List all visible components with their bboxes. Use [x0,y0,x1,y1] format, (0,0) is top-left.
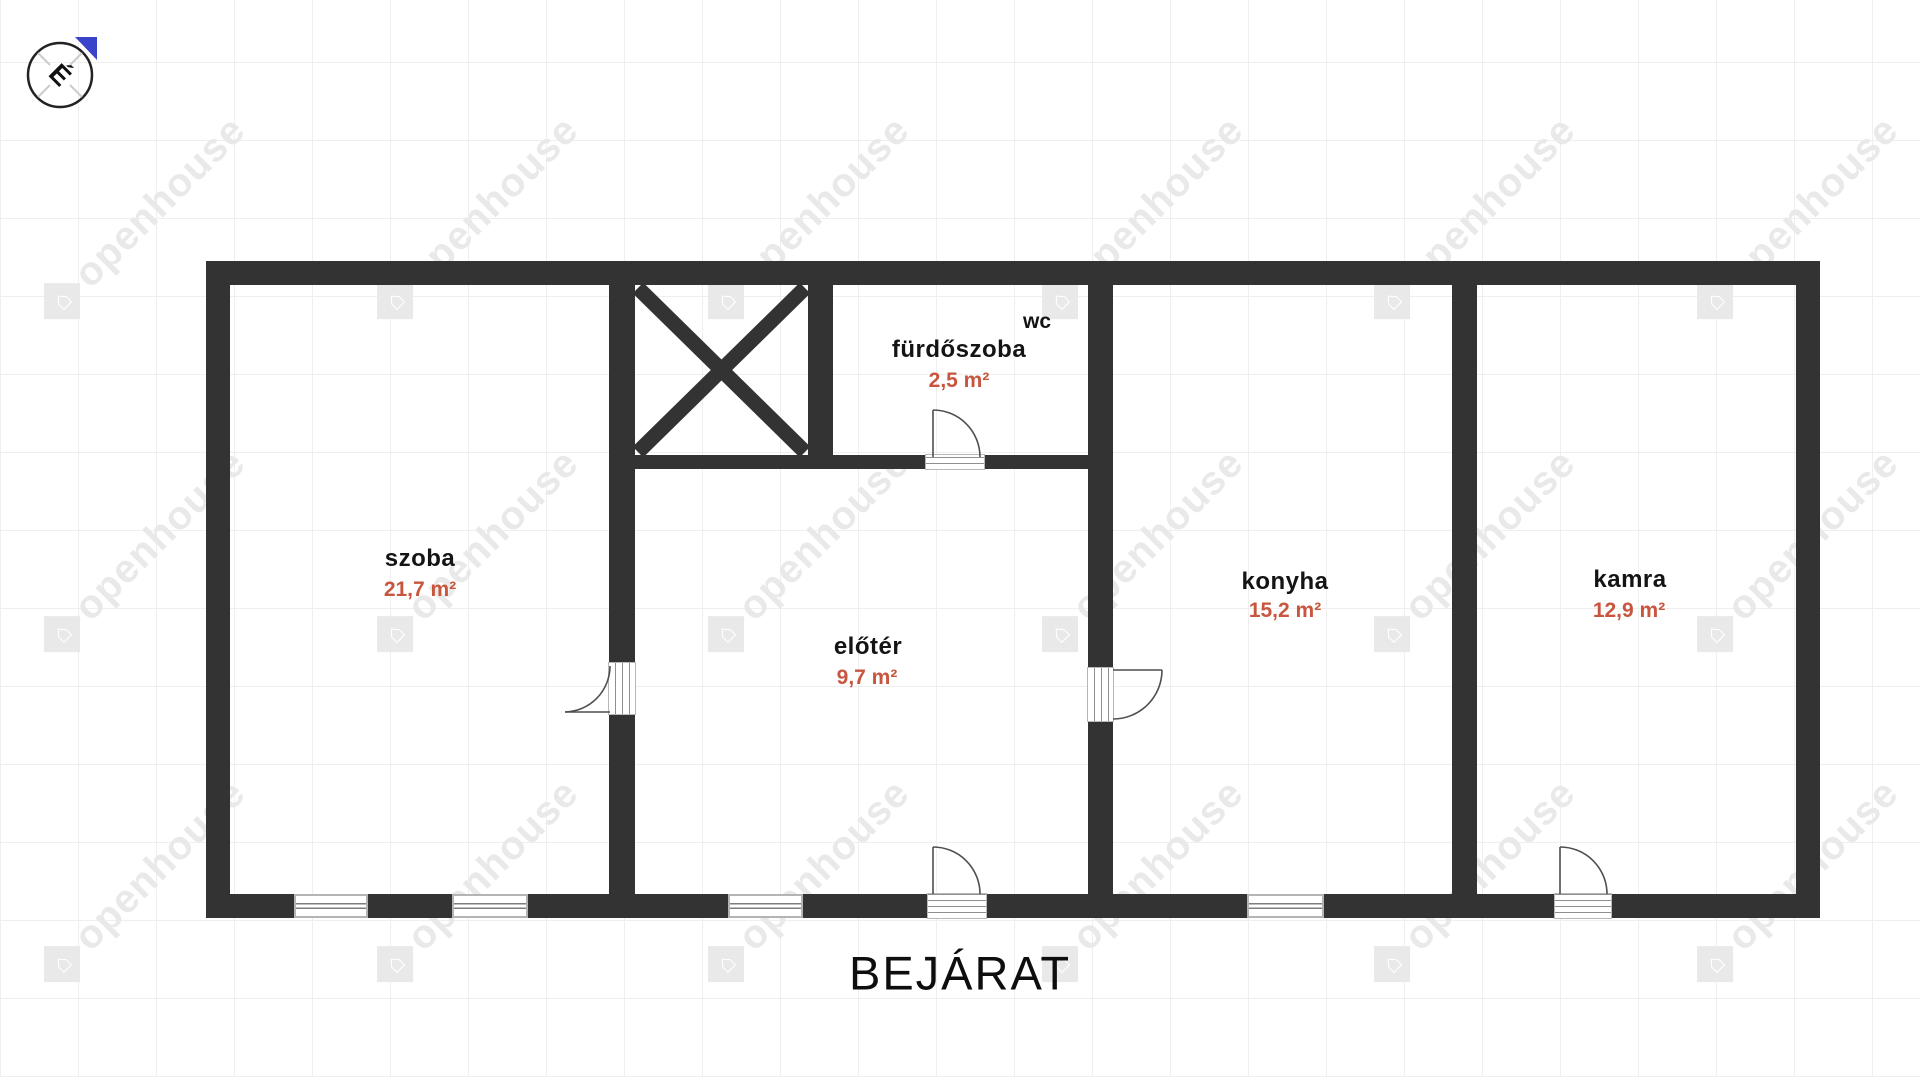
entrance-label: BEJÁRAT [849,946,1071,1001]
room-area-szoba: 21,7 m² [384,578,456,602]
room-name-szoba: szoba [385,545,456,573]
door-kamra-icon [1560,847,1607,894]
door-swings [0,0,1920,1077]
door-entrance-icon [933,847,980,894]
room-area-furdoszoba: 2,5 m² [929,369,990,393]
floor-plan-page: openhouse openhouse openhouse openhouse … [0,0,1920,1077]
door-szoba-icon [565,666,610,712]
door-furdoszoba-icon [933,410,980,457]
room-label-wc: wc [1023,310,1051,334]
room-area-eloter: 9,7 m² [837,666,898,690]
room-area-kamra: 12,9 m² [1593,599,1665,623]
door-konyha-icon [1113,670,1162,719]
room-area-konyha: 15,2 m² [1249,599,1321,623]
room-name-eloter: előtér [834,633,902,661]
room-name-furdoszoba: fürdőszoba [892,336,1026,364]
room-name-kamra: kamra [1593,566,1666,594]
room-name-konyha: konyha [1241,568,1328,596]
